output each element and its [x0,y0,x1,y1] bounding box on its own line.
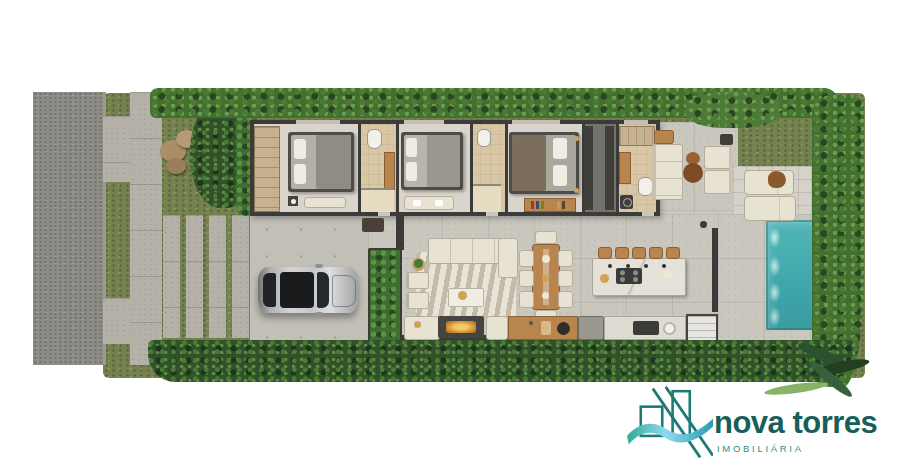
nova-torres-logo: nova torres IMOBILIÁRIA [627,386,887,466]
logo-wordmark: nova torres [714,407,877,438]
logo-tagline: IMOBILIÁRIA [717,444,804,454]
floor-plan-render: nova torres IMOBILIÁRIA [0,0,900,472]
logo-layer: nova torres IMOBILIÁRIA [0,0,900,472]
nova-torres-logo-mark [627,386,713,460]
